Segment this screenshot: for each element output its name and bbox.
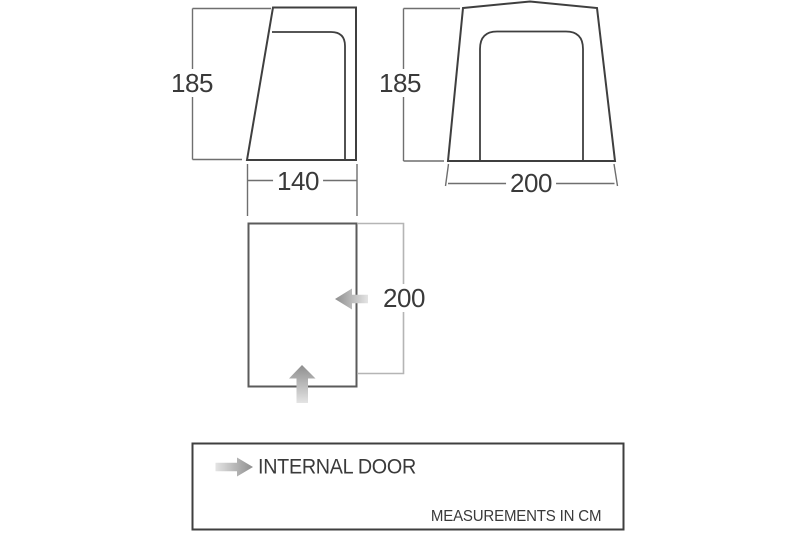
side-height-label: 185 — [167, 69, 217, 97]
floorplan-depth-label: 200 — [379, 284, 429, 312]
floorplan-outline — [249, 224, 357, 387]
tent-dimensions-diagram: 185 140 185 200 200 INTERNAL DOOR MEASUR… — [0, 0, 800, 533]
floorplan — [249, 224, 404, 404]
measurements-units-note: MEASUREMENTS IN CM — [431, 509, 601, 525]
side-view-outline — [247, 8, 356, 161]
front-view — [404, 2, 618, 187]
front-height-label: 185 — [375, 69, 425, 97]
internal-door-label: INTERNAL DOOR — [258, 457, 416, 478]
front-view-outline — [448, 2, 615, 162]
side-width-label: 140 — [273, 167, 323, 195]
front-width-label: 200 — [506, 169, 556, 197]
